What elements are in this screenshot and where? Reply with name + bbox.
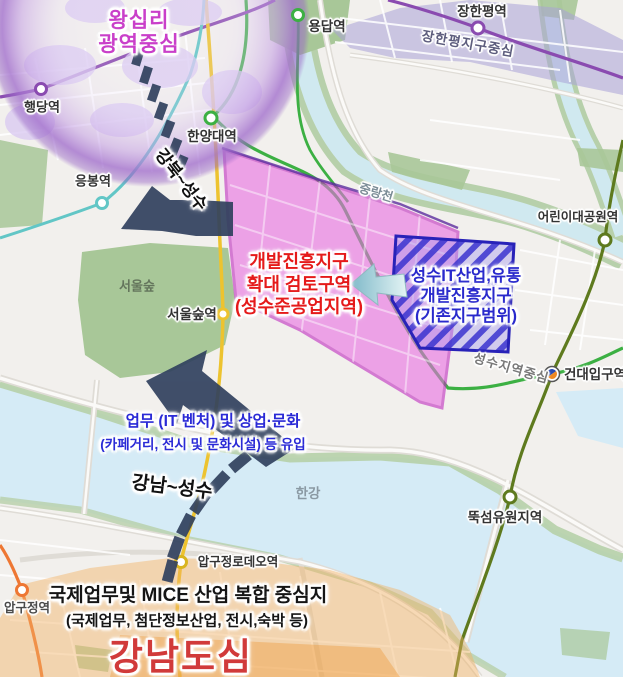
inflow-line2: (카페거리, 전시 및 문화시설) 등 유입 [100, 437, 305, 453]
map-labels: 왕십리 광역중심 개발진흥지구 확대 검토구역 (성수준공업지역) 성수IT산업… [0, 0, 623, 677]
urban-plan-map: 왕십리 광역중심 개발진흥지구 확대 검토구역 (성수준공업지역) 성수IT산업… [0, 0, 623, 677]
mice-line2: (국제업무, 첨단정보산업, 전시,숙박 등) [66, 612, 308, 629]
existing-zone-label: 성수IT산업,유통 개발진흥지구 (기존지구범위) [411, 266, 521, 326]
konkuk-univ-label: 건대입구역 [564, 367, 623, 383]
hangang-label: 한강 [296, 486, 321, 502]
janghanpyeong-label: 장한평역 [457, 4, 507, 20]
jungnangcheon-label: 중랑천 [357, 181, 394, 205]
existing-line3: (기존지구범위) [411, 306, 521, 326]
apgujeong-rodeo-label: 압구정로데오역 [198, 555, 279, 569]
existing-line2: 개발진흥지구 [411, 286, 521, 306]
seoul-forest-station-label: 서울숲역 [167, 307, 217, 323]
wangsimni-center-label: 왕십리 광역중심 [98, 9, 179, 57]
mice-line1: 국제업무및 MICE 산업 복합 중심지 [49, 585, 327, 607]
seongsu-center-label: 성수지역중심 [472, 351, 551, 387]
expand-line2: 확대 검토구역 [235, 273, 363, 296]
gangnam-downtown-title: 강남도심 [109, 637, 253, 677]
expand-line1: 개발진흥지구 [235, 250, 363, 273]
inflow-line1: 업무 (IT 벤처) 및 상업·문화 [126, 413, 301, 431]
ttukseom-resort-label: 뚝섬유원지역 [468, 510, 543, 526]
yongdap-label: 용답역 [308, 19, 345, 35]
children-grand-park-label: 어린이대공원역 [538, 210, 619, 224]
wangsimni-line1: 왕십리 [98, 9, 179, 33]
expand-zone-label: 개발진흥지구 확대 검토구역 (성수준공업지역) [235, 250, 363, 318]
hanyang-univ-label: 한양대역 [187, 129, 237, 145]
existing-line1: 성수IT산업,유통 [411, 266, 521, 286]
seoul-forest-park-label: 서울숲 [119, 280, 155, 295]
haengdang-label: 행당역 [24, 101, 60, 116]
gangnam-seongsu-label: 강남~성수 [130, 472, 213, 504]
gangbuk-seongsu-label: 강북~성수 [151, 145, 211, 214]
eungbong-label: 응봉역 [75, 175, 111, 190]
apgujeong-label: 압구정역 [4, 601, 50, 615]
wangsimni-line2: 광역중심 [98, 33, 179, 57]
expand-line3: (성수준공업지역) [235, 295, 363, 318]
janghanpyeong-district-label: 장한평지구중심 [420, 28, 515, 60]
